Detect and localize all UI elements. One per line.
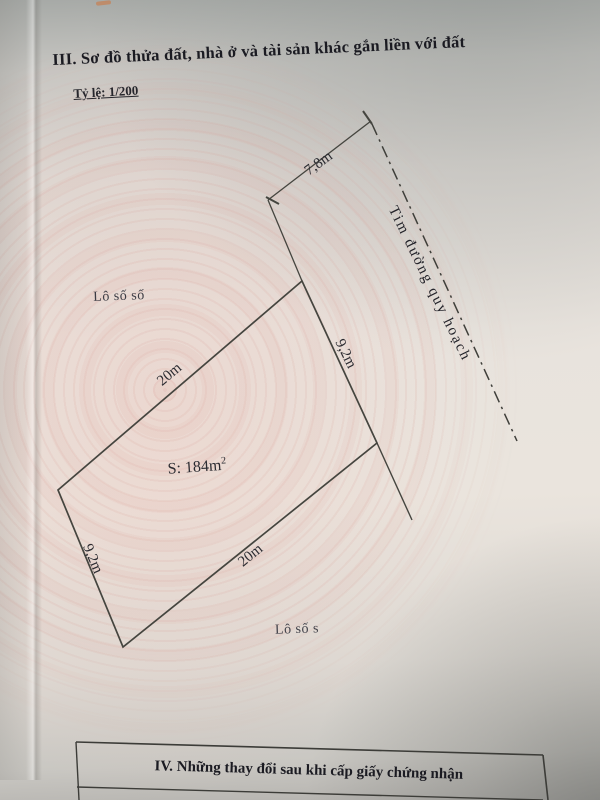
dimension-tick-road — [363, 111, 372, 124]
section-iv-heading: IV. Những thay đổi sau khi cấp giấy chứn… — [154, 758, 463, 784]
area-label-superscript: 2 — [221, 455, 227, 466]
area-label-text: S: 184m — [167, 457, 222, 478]
area-label: S: 184m2 — [167, 455, 227, 478]
plot-diagram — [0, 0, 600, 800]
adjacent-lot-label-bottom: Lô số s — [275, 621, 319, 639]
section-iv-box-right — [543, 755, 548, 800]
east-corner-extension-line — [377, 443, 412, 520]
road-centerline-dashed — [372, 124, 517, 441]
adjacent-lot-label-top: Lô số số — [93, 288, 145, 306]
boundary-extension-line — [268, 200, 302, 281]
certificate-photo: III. Sơ đồ thửa đất, nhà ở và tài sản kh… — [0, 0, 600, 800]
